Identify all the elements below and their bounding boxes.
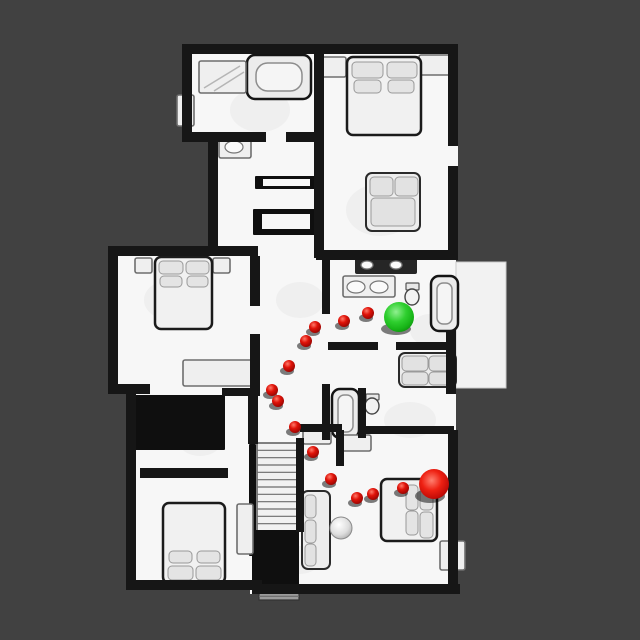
globe-decor bbox=[330, 517, 352, 539]
pillow bbox=[387, 62, 417, 78]
closet-door-frame-2 bbox=[253, 209, 320, 235]
wall-segment bbox=[252, 584, 460, 594]
wall-segment bbox=[314, 50, 324, 140]
pillow bbox=[352, 62, 383, 78]
wall-segment bbox=[208, 138, 218, 256]
bathtub-central-right bbox=[431, 276, 458, 331]
bathtub-central-right-basin bbox=[437, 283, 452, 324]
wall-segment bbox=[358, 388, 366, 438]
pillow bbox=[186, 261, 209, 274]
cushion bbox=[395, 177, 418, 196]
waypoint-dot bbox=[266, 384, 278, 396]
patio-area bbox=[456, 262, 506, 388]
waypoint-dot bbox=[362, 307, 374, 319]
vanity-double-sink bbox=[343, 276, 395, 297]
pillow bbox=[187, 276, 208, 287]
cushion bbox=[305, 495, 316, 518]
bathtub-top-left bbox=[247, 55, 311, 99]
sink-basin bbox=[390, 261, 402, 269]
dresser-left-room-body bbox=[183, 360, 258, 386]
waypoint-dot bbox=[351, 492, 363, 504]
closet-door-frame-1-inner bbox=[263, 179, 310, 186]
wall-segment bbox=[300, 424, 342, 432]
nightstand-left-room-b-body bbox=[213, 258, 230, 273]
waypoint-dot bbox=[300, 335, 312, 347]
cushion bbox=[370, 177, 393, 196]
wall-segment bbox=[140, 468, 228, 478]
wall-segment bbox=[448, 44, 458, 146]
armchair-master bbox=[366, 173, 420, 231]
shower-top-left bbox=[199, 61, 246, 93]
wall-segment bbox=[448, 430, 458, 590]
waypoint-dot bbox=[309, 321, 321, 333]
under-stairs-dark bbox=[252, 530, 299, 588]
wall-segment bbox=[182, 44, 324, 54]
pillow bbox=[160, 276, 182, 287]
wall-segment bbox=[126, 392, 136, 590]
cushion bbox=[371, 198, 415, 226]
dresser-left-room bbox=[183, 360, 258, 386]
nightstand-left-room-b bbox=[213, 258, 230, 273]
nightstand-left-room-a bbox=[135, 258, 152, 273]
waypoint-dot bbox=[307, 446, 319, 458]
wall-segment bbox=[316, 44, 458, 54]
waypoint-dot bbox=[283, 360, 295, 372]
sink-basin bbox=[361, 261, 373, 269]
dresser-bottom-left bbox=[237, 504, 253, 554]
wall-segment bbox=[316, 250, 456, 260]
pillow bbox=[196, 566, 221, 580]
pillow bbox=[354, 80, 381, 93]
floorplan-canvas bbox=[0, 0, 640, 640]
toilet-lower bbox=[365, 394, 379, 414]
wall-segment bbox=[182, 44, 192, 140]
waypoint-dot bbox=[289, 421, 301, 433]
pillow bbox=[388, 80, 414, 93]
wall-segment bbox=[126, 580, 262, 590]
closet-door-frame-1 bbox=[255, 176, 319, 189]
start-marker-sphere bbox=[384, 302, 414, 332]
cushion bbox=[402, 356, 428, 371]
dresser-bottom-right-body bbox=[341, 435, 371, 451]
nightstand-left-room-a-body bbox=[135, 258, 152, 273]
waypoint-dot bbox=[272, 395, 284, 407]
globe-decor-sphere bbox=[330, 517, 352, 539]
dresser-bottom-right bbox=[341, 435, 371, 451]
cushion bbox=[402, 372, 428, 385]
wall-segment bbox=[322, 384, 330, 440]
wall-segment bbox=[314, 140, 324, 258]
pillow bbox=[197, 551, 220, 563]
scene-viewport bbox=[0, 0, 640, 640]
closet-door-frame-2-inner bbox=[262, 214, 310, 229]
staircase bbox=[257, 443, 297, 531]
pillow bbox=[420, 512, 433, 538]
bed-bottom-left bbox=[163, 503, 225, 583]
bed-master bbox=[347, 57, 421, 135]
wall-segment bbox=[250, 256, 260, 306]
sink-basin bbox=[347, 281, 365, 293]
wall-segment bbox=[108, 246, 118, 394]
nightstand-master-right-body bbox=[419, 55, 453, 75]
waypoint-dot bbox=[325, 473, 337, 485]
toilet-lower-bowl bbox=[365, 398, 379, 414]
sofa-bottom-center bbox=[302, 491, 330, 569]
wall-segment bbox=[250, 334, 260, 396]
wardrobe-dark-left-body bbox=[132, 395, 225, 450]
wall-segment bbox=[108, 246, 258, 256]
waypoint-dot bbox=[338, 315, 350, 327]
waypoint-dot bbox=[397, 482, 409, 494]
dresser-bottom-left-body bbox=[237, 504, 253, 554]
wall-segment bbox=[296, 438, 304, 532]
sink-basin bbox=[370, 281, 388, 293]
wall-segment bbox=[214, 132, 266, 142]
nightstand-master-right bbox=[419, 55, 453, 75]
cushion bbox=[305, 520, 316, 543]
bed-left-room bbox=[155, 257, 212, 329]
wall-segment bbox=[448, 166, 458, 260]
wall-segment bbox=[328, 342, 378, 350]
pillow bbox=[159, 261, 183, 274]
wall-segment bbox=[336, 430, 344, 466]
sink-basin bbox=[225, 141, 243, 153]
waypoint-dot bbox=[367, 488, 379, 500]
toilet-central bbox=[405, 283, 419, 305]
wall-segment bbox=[360, 426, 454, 434]
wall-segment bbox=[396, 342, 454, 350]
goal-marker-sphere bbox=[419, 469, 449, 499]
wall-segment bbox=[248, 392, 258, 444]
wardrobe-dark-left bbox=[132, 395, 225, 450]
floor-shading bbox=[276, 282, 324, 318]
toilet-central-bowl bbox=[405, 289, 419, 305]
pillow bbox=[168, 566, 193, 580]
under-stairs-dark-body bbox=[252, 530, 299, 588]
pillow bbox=[406, 511, 418, 535]
bathtub-top-left-basin bbox=[256, 63, 302, 91]
wall-segment bbox=[446, 330, 456, 394]
pillow bbox=[169, 551, 192, 563]
wall-segment bbox=[322, 258, 330, 314]
cushion bbox=[305, 544, 316, 566]
